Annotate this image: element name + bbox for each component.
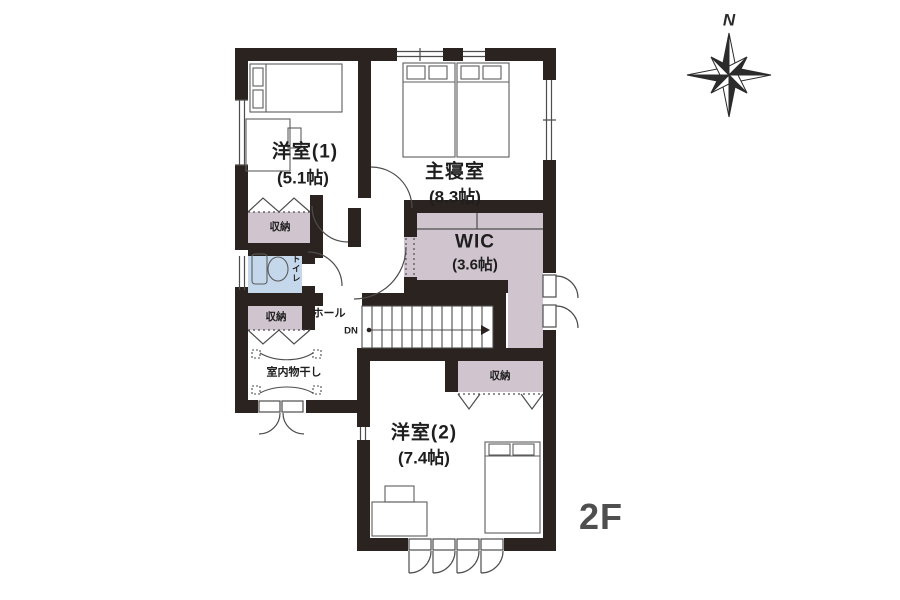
toilet-label: トイレ (292, 255, 301, 284)
room-label-yoshitsu2: 洋室(2) (391, 424, 457, 443)
storage-label-1: 収納 (270, 222, 291, 233)
storage-label-3: 収納 (490, 371, 511, 382)
room-label-yoshitsu1: 洋室(1) (272, 143, 338, 162)
room-size-yoshitsu2: (7.4帖) (398, 450, 450, 467)
stairs (362, 306, 493, 348)
compass-icon (687, 33, 771, 117)
desk-yoshitsu2 (372, 486, 427, 536)
room-size-wic: (3.6帖) (452, 258, 498, 273)
stairs-dn-label: DN (344, 326, 358, 336)
room-size-master: (8.3帖) (429, 189, 481, 206)
room-label-master: 主寝室 (425, 163, 485, 182)
hall-label: ホール (313, 309, 346, 320)
beds-master (403, 63, 509, 157)
balcony-doors-left (259, 401, 304, 434)
bed-yoshitsu1 (250, 64, 342, 112)
bed-yoshitsu2 (485, 442, 540, 533)
casement-windows (543, 275, 578, 328)
walls (235, 48, 556, 551)
drying-label: 室内物干し (267, 368, 322, 379)
room-label-wic: WIC (455, 233, 495, 252)
floorplan-page: 洋室(1) (5.1帖) 主寝室 (8.3帖) WIC (3.6帖) 洋室(2)… (0, 0, 900, 600)
room-size-yoshitsu1: (5.1帖) (277, 170, 329, 187)
storage-label-2: 収納 (266, 312, 287, 323)
balcony-doors-bottom (409, 539, 503, 573)
floorplan-drawing (0, 0, 900, 600)
floor-label: 2F (579, 499, 623, 535)
hall-door-arc (354, 247, 406, 299)
compass-north-label: N (723, 12, 735, 29)
